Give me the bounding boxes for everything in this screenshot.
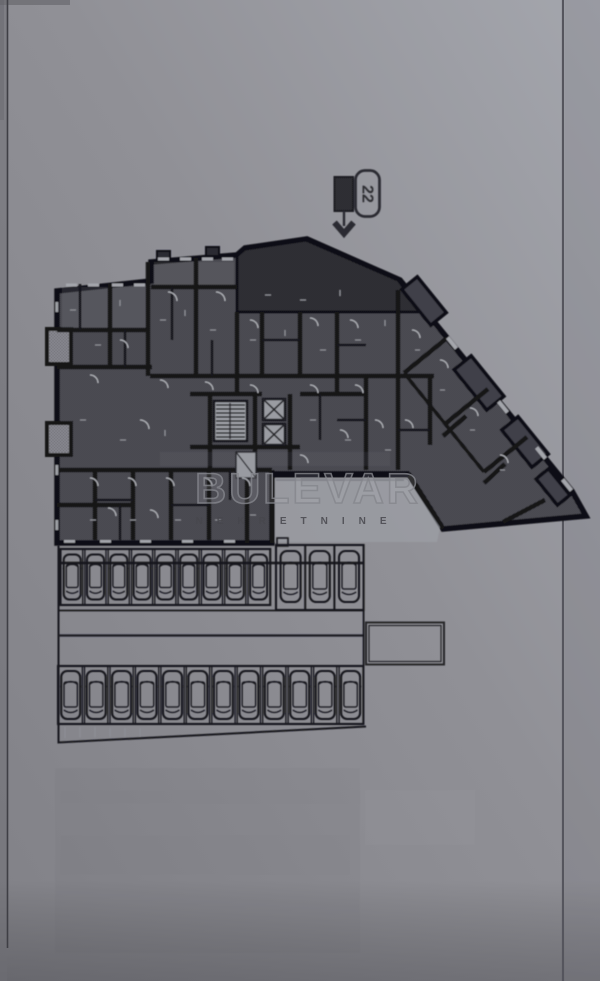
svg-text:BULEVAR: BULEVAR: [195, 465, 421, 513]
svg-text:22: 22: [359, 185, 376, 203]
svg-text:NEKRETNINE: NEKRETNINE: [195, 516, 400, 527]
